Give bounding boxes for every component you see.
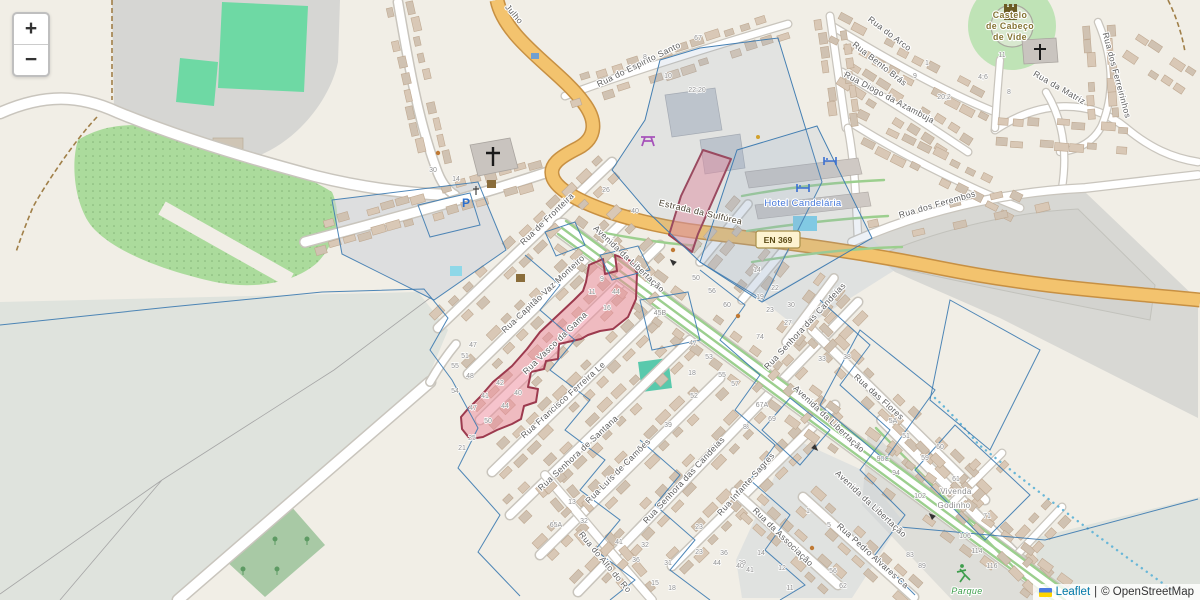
house-number: 21 (458, 445, 466, 452)
sports-pitch-small (176, 58, 218, 106)
building (1087, 52, 1096, 67)
vivenda-label-1: Vivenda (940, 487, 972, 496)
house-number: 42 (496, 380, 504, 387)
house-number: 8 (743, 424, 747, 431)
house-number: 23 (766, 307, 774, 314)
hotel-label: Hotel Candelária (764, 198, 841, 209)
building (1088, 82, 1095, 91)
building (851, 99, 859, 112)
house-number: 52 (690, 393, 698, 400)
house-number: 71 (983, 513, 991, 520)
building (828, 87, 837, 101)
house-number: 59 (921, 455, 929, 462)
house-number: 51 (461, 353, 469, 360)
house-number: 11 (786, 585, 793, 592)
building (814, 19, 822, 30)
house-number: 1 (925, 60, 929, 67)
building (1083, 26, 1091, 39)
house-number: 44 (501, 403, 509, 410)
building (1040, 140, 1053, 148)
building (1013, 119, 1023, 127)
house-number: 50 (692, 275, 700, 282)
building (1101, 122, 1116, 131)
building (1118, 127, 1127, 134)
house-number: 16 (603, 305, 611, 312)
house-number: 23 (695, 549, 703, 556)
leaflet-map[interactable]: P (0, 0, 1200, 600)
building (1087, 143, 1096, 150)
pool (450, 266, 462, 276)
castle-label-1: Castelo (993, 10, 1028, 20)
house-number: 11 (588, 289, 595, 296)
building (1088, 109, 1096, 119)
house-number: 11 (998, 52, 1005, 59)
house-number: 14 (452, 176, 460, 183)
house-number: 25 (468, 435, 476, 442)
house-number: 41 (746, 567, 754, 574)
building (840, 31, 847, 41)
house-number: 69 (768, 416, 776, 423)
house-number: 9 (600, 276, 604, 283)
house-number: 5 (827, 522, 831, 529)
parking-icon: P (462, 196, 470, 210)
house-number: 8 (1007, 89, 1011, 96)
house-number: 62 (839, 583, 847, 590)
house-number: 51 (902, 433, 910, 440)
house-number: 102 (914, 493, 926, 500)
house-number: 4;6 (978, 74, 988, 81)
shop-dot-icon (810, 546, 814, 550)
house-number: 41 (481, 393, 489, 400)
house-number: 56 (708, 288, 716, 295)
house-number: 5A (889, 418, 898, 425)
shop-gift-icon (487, 180, 496, 188)
leaflet-link[interactable]: Leaflet (1056, 586, 1091, 598)
house-number: 19 (756, 294, 764, 301)
zoom-out-button[interactable]: − (14, 45, 48, 75)
house-number: 54 (451, 388, 459, 395)
house-number: 8 (643, 54, 647, 61)
house-number: 47 (689, 340, 697, 347)
ukraine-flag-icon (1039, 588, 1052, 597)
house-number: 67A (756, 402, 769, 409)
house-number: 55 (718, 372, 726, 379)
building (1069, 144, 1084, 153)
house-number: 20;2 (937, 94, 951, 101)
house-number: 44 (612, 289, 620, 296)
building (1010, 141, 1022, 148)
house-number: 40 (514, 390, 522, 397)
building (1057, 119, 1069, 126)
zoom-control: + − (12, 12, 50, 77)
shop-dot-icon (671, 248, 675, 252)
vivenda-label-2: Godinho (937, 501, 970, 510)
house-number: 45B (654, 310, 667, 317)
shop-furniture-icon (516, 274, 525, 282)
house-number: 65A (550, 522, 563, 529)
building (820, 46, 829, 58)
route-badge: EN 369 (756, 231, 800, 248)
recycling-icon (531, 53, 539, 59)
house-number: 27 (784, 320, 792, 327)
house-number: 61 (952, 476, 960, 483)
house-number: 26 (602, 187, 610, 194)
house-number: 60 (936, 444, 944, 451)
osm-attribution-link[interactable]: © OpenStreetMap (1101, 586, 1194, 598)
house-number: 48 (466, 373, 474, 380)
castle-label-3: de Vide (993, 32, 1027, 42)
house-number: 106 (959, 533, 971, 540)
house-number: 36 (632, 557, 640, 564)
house-number: 55 (451, 363, 459, 370)
building (1083, 39, 1091, 52)
house-number: 31 (664, 560, 672, 567)
house-number: 74 (756, 334, 764, 341)
house-number: 15 (651, 580, 659, 587)
house-number: 40 (736, 563, 744, 570)
sports-pitch (218, 2, 308, 92)
building (849, 113, 858, 127)
house-number: 1 (806, 508, 810, 515)
building (846, 58, 854, 69)
house-number: 47 (469, 342, 477, 349)
building (1112, 108, 1119, 117)
attribution-separator: | (1094, 586, 1097, 598)
house-number: 38 (843, 354, 851, 361)
house-number: 40 (631, 208, 639, 215)
castle-label-2: de Cabeço (986, 21, 1034, 31)
building (1108, 92, 1117, 107)
building (1116, 147, 1126, 155)
house-number: 116 (986, 563, 997, 570)
shop-dot-icon (436, 151, 440, 155)
house-number: 94 (892, 470, 900, 477)
building (827, 101, 837, 116)
house-number: 22;20 (688, 87, 706, 94)
house-number: 18 (688, 370, 696, 377)
house-number: 50 (484, 418, 492, 425)
house-number: 33 (818, 356, 826, 363)
building (818, 32, 827, 44)
building (1028, 117, 1040, 126)
house-number: 41 (615, 539, 623, 546)
house-number: 14 (753, 267, 761, 274)
shop-dot-icon (736, 314, 740, 318)
house-number: 114 (971, 548, 982, 555)
house-number: 53 (705, 354, 713, 361)
house-number: 32 (641, 542, 649, 549)
house-number: 22 (771, 285, 779, 292)
house-number: 32 (580, 518, 588, 525)
house-number: 39 (664, 422, 672, 429)
building (849, 85, 857, 98)
zoom-in-button[interactable]: + (14, 14, 48, 45)
house-number: 23 (695, 524, 703, 531)
shop-dot-icon (756, 135, 760, 139)
house-number: 67 (694, 35, 702, 42)
building (998, 118, 1008, 126)
park-label: Parque (951, 586, 982, 596)
house-number: 30 (787, 302, 795, 309)
house-number: 89 (918, 563, 926, 570)
house-number: 30 (429, 167, 437, 174)
building (821, 60, 829, 73)
house-number: 12 (778, 565, 786, 572)
house-number: 14 (757, 550, 765, 557)
house-number: 10 (664, 73, 672, 80)
attribution-bar: Leaflet | © OpenStreetMap (1033, 584, 1200, 600)
building (996, 137, 1008, 146)
house-number: 83 (906, 552, 914, 559)
house-number: 90C (877, 456, 890, 463)
route-ref-label: EN 369 (764, 235, 793, 245)
house-number: 56 (829, 568, 837, 575)
house-number: 60 (723, 302, 731, 309)
house-number: 57 (731, 381, 739, 388)
house-number: 44 (713, 560, 721, 567)
map-canvas[interactable]: P (0, 0, 1200, 600)
building (1054, 142, 1069, 151)
house-number: 18 (668, 585, 676, 592)
building (1071, 122, 1084, 130)
house-number: 47 (469, 405, 477, 412)
house-number: 36 (720, 550, 728, 557)
house-number: 13 (568, 499, 576, 506)
house-number: 9 (913, 73, 917, 80)
